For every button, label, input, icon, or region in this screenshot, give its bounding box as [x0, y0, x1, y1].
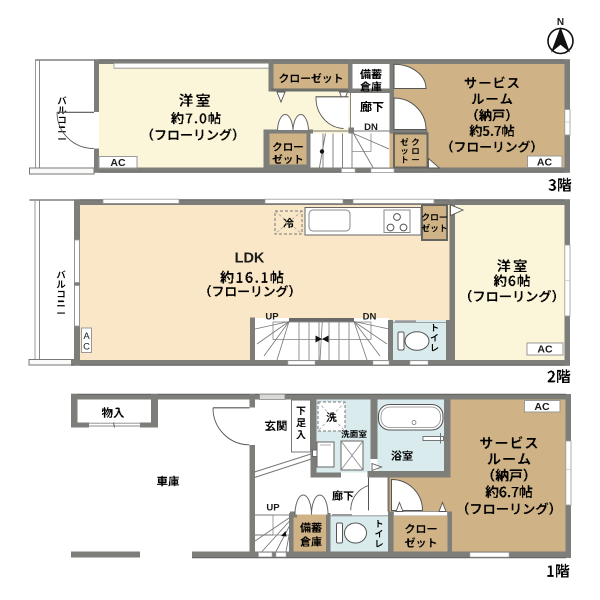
svg-text:UP: UP — [266, 503, 280, 514]
svg-text:AC: AC — [537, 343, 553, 355]
svg-text:AC: AC — [110, 157, 126, 169]
svg-text:DN: DN — [364, 122, 378, 133]
svg-text:UP: UP — [265, 312, 279, 323]
svg-text:LDK: LDK — [235, 251, 265, 267]
svg-text:DN: DN — [363, 312, 377, 323]
svg-text:C: C — [83, 342, 90, 353]
svg-text:A: A — [83, 331, 90, 342]
svg-text:AC: AC — [537, 156, 553, 168]
svg-text:AC: AC — [534, 401, 550, 413]
svg-text:N: N — [557, 17, 564, 28]
